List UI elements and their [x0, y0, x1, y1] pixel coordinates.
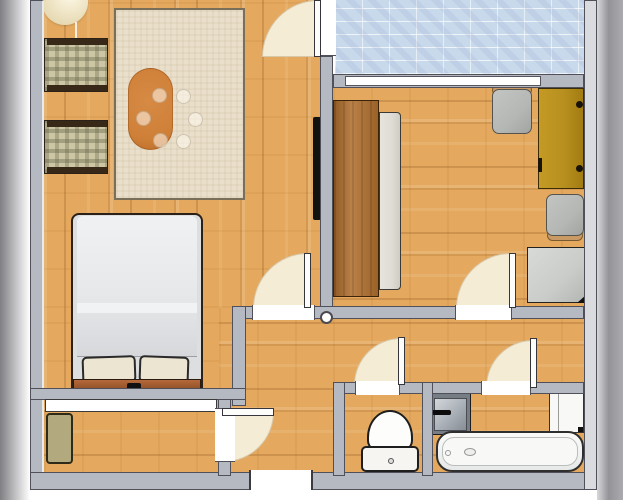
bathroom-cabinet: [549, 392, 584, 433]
dresser: [527, 247, 586, 303]
wardrobe: [333, 100, 379, 297]
seat-circle-5: [153, 133, 168, 148]
armchair-1-seat: [45, 39, 107, 91]
cabinet-mark: [578, 427, 583, 432]
toilet-button: [388, 458, 394, 464]
faucet-icon: [432, 410, 451, 415]
office-door-threshold: [455, 305, 512, 320]
bed: [71, 213, 203, 393]
balcony-window: [345, 76, 541, 86]
bathtub: [436, 431, 584, 472]
toilet-tank: [361, 446, 419, 472]
wall-living-office-divider: [320, 56, 333, 308]
wall-wc-bath-divider: [422, 382, 433, 476]
office-door-leaf: [509, 253, 516, 308]
entry-door-leaf: [222, 408, 274, 416]
washbasin: [429, 393, 471, 435]
cabinet-divider: [558, 393, 559, 432]
entry-door-threshold: [215, 408, 235, 462]
wc-door-leaf: [398, 337, 405, 385]
floor-plan: [0, 0, 623, 500]
bed-duvet: [77, 216, 197, 357]
living-room-door-leaf: [304, 253, 311, 308]
desk-chair-2: [546, 194, 584, 236]
seat-circle-2: [176, 89, 191, 104]
seat-circle-1: [152, 88, 167, 103]
wall-outer-bottom: [30, 472, 598, 490]
bed-duvet-fold: [77, 303, 197, 313]
wall-outer-right: [584, 0, 597, 490]
wall-wc-left: [333, 382, 345, 476]
desk-knob-2: [576, 165, 583, 172]
armchair-2: [44, 120, 108, 174]
bathtub-inner: [442, 437, 578, 466]
page-shadow-right: [597, 0, 623, 500]
page-shadow-left: [0, 0, 30, 500]
armchair-2-seat: [45, 121, 107, 173]
armchair-1-arm-bottom: [47, 85, 107, 91]
wall-outer-left: [30, 0, 44, 490]
bathtub-drain: [445, 450, 451, 456]
wardrobe-panel: [379, 112, 401, 290]
armchair-2-arm-bottom: [47, 167, 107, 173]
corridor-closet-strip: [45, 399, 217, 412]
armchair-2-arm-top: [47, 121, 107, 127]
bathroom-door-leaf: [530, 338, 537, 388]
doormat: [46, 413, 73, 464]
seat-circle-6: [176, 134, 191, 149]
desk-notch: [538, 158, 542, 172]
hinge-column-dot: [320, 311, 333, 324]
seat-circle-4: [188, 112, 203, 127]
balcony-door-leaf: [314, 0, 321, 57]
armchair-1-arm-top: [47, 39, 107, 45]
desk-chair-1: [492, 89, 532, 134]
bathroom-door-threshold: [481, 381, 531, 395]
bathtub-faucet: [464, 448, 476, 456]
seat-circle-3: [136, 111, 151, 126]
page-bottom-gap: [30, 490, 597, 500]
wc-door-threshold: [355, 381, 400, 395]
armchair-1: [44, 38, 108, 92]
desk-knob-1: [576, 101, 583, 108]
floor-balcony: [335, 0, 584, 74]
